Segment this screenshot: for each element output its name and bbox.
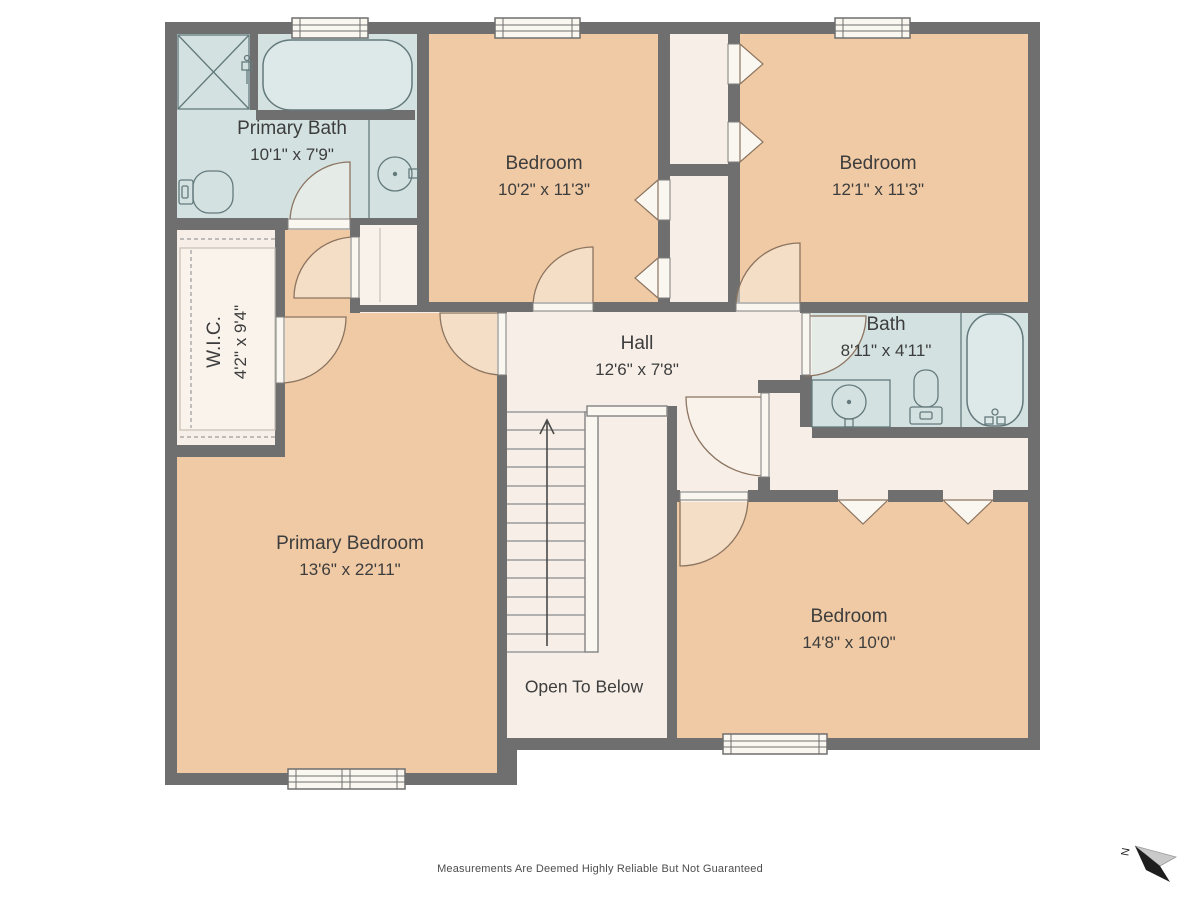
window — [723, 734, 827, 754]
floorplan-drawing — [0, 0, 1200, 900]
wall-segment — [658, 164, 740, 176]
door-leaf — [288, 219, 350, 229]
room-label-wic: W.I.C. 4'2" x 9'4" — [201, 305, 253, 379]
room-label-primary-bath: Primary Bath 10'1" x 7'9" — [237, 115, 347, 167]
hall-closet — [360, 225, 417, 305]
bathtub-icon — [967, 314, 1023, 426]
disclaimer-text: Measurements Are Deemed Highly Reliable … — [437, 863, 763, 875]
wall-segment — [728, 162, 740, 302]
door-leaf — [761, 393, 769, 477]
wall-segment — [275, 383, 285, 455]
room-label-bedroom-bottom-right: Bedroom 14'8" x 10'0" — [802, 603, 895, 655]
window-double — [288, 769, 405, 789]
wall-segment — [250, 33, 258, 110]
wall-segment — [275, 230, 285, 317]
wall-segment — [993, 490, 1040, 502]
wall-segment — [658, 220, 670, 258]
north-arrow-icon — [1108, 828, 1188, 892]
wall-segment — [758, 380, 812, 393]
door-leaf — [802, 313, 810, 375]
room-label-bath: Bath 8'11" x 4'11" — [841, 311, 932, 363]
stairwell-railing — [587, 406, 667, 416]
wall-segment — [667, 502, 677, 750]
door-leaf — [276, 317, 284, 383]
wall-segment — [728, 84, 740, 122]
door-leaf — [498, 313, 506, 375]
wall-segment — [1028, 22, 1040, 750]
wall-segment — [800, 302, 812, 313]
room-label-bedroom-top-right: Bedroom 12'1" x 11'3" — [832, 150, 924, 202]
wall-segment — [812, 427, 1040, 438]
compass: N — [1108, 828, 1188, 892]
wall-segment — [350, 225, 360, 237]
wall-segment — [667, 406, 677, 502]
window — [835, 18, 910, 38]
floorplan-canvas: Primary Bath 10'1" x 7'9" Bedroom 10'2" … — [0, 0, 1200, 900]
wall-segment — [748, 490, 838, 502]
wall-segment — [888, 490, 943, 502]
wall-segment — [165, 22, 177, 785]
window — [292, 18, 368, 38]
open-to-below-label: Open To Below — [525, 674, 643, 699]
door-leaf — [351, 237, 359, 298]
wall-segment — [658, 34, 670, 180]
door-leaf — [533, 303, 593, 311]
door-leaf — [680, 492, 748, 500]
wall-segment — [728, 34, 740, 44]
door-leaf — [736, 303, 800, 311]
wall-segment — [417, 34, 429, 312]
stair-railing — [585, 412, 598, 652]
room-label-bedroom-top-middle: Bedroom 10'2" x 11'3" — [498, 150, 590, 202]
bathtub-icon — [263, 40, 412, 110]
wall-segment — [165, 445, 285, 457]
wall-segment — [165, 218, 288, 230]
window — [495, 18, 580, 38]
room-label-hall: Hall 12'6" x 7'8" — [595, 330, 679, 382]
room-label-primary-bedroom: Primary Bedroom 13'6" x 22'11" — [276, 530, 424, 582]
wall-segment — [497, 375, 507, 773]
wall-segment — [497, 302, 507, 313]
wall-segment — [658, 298, 670, 304]
